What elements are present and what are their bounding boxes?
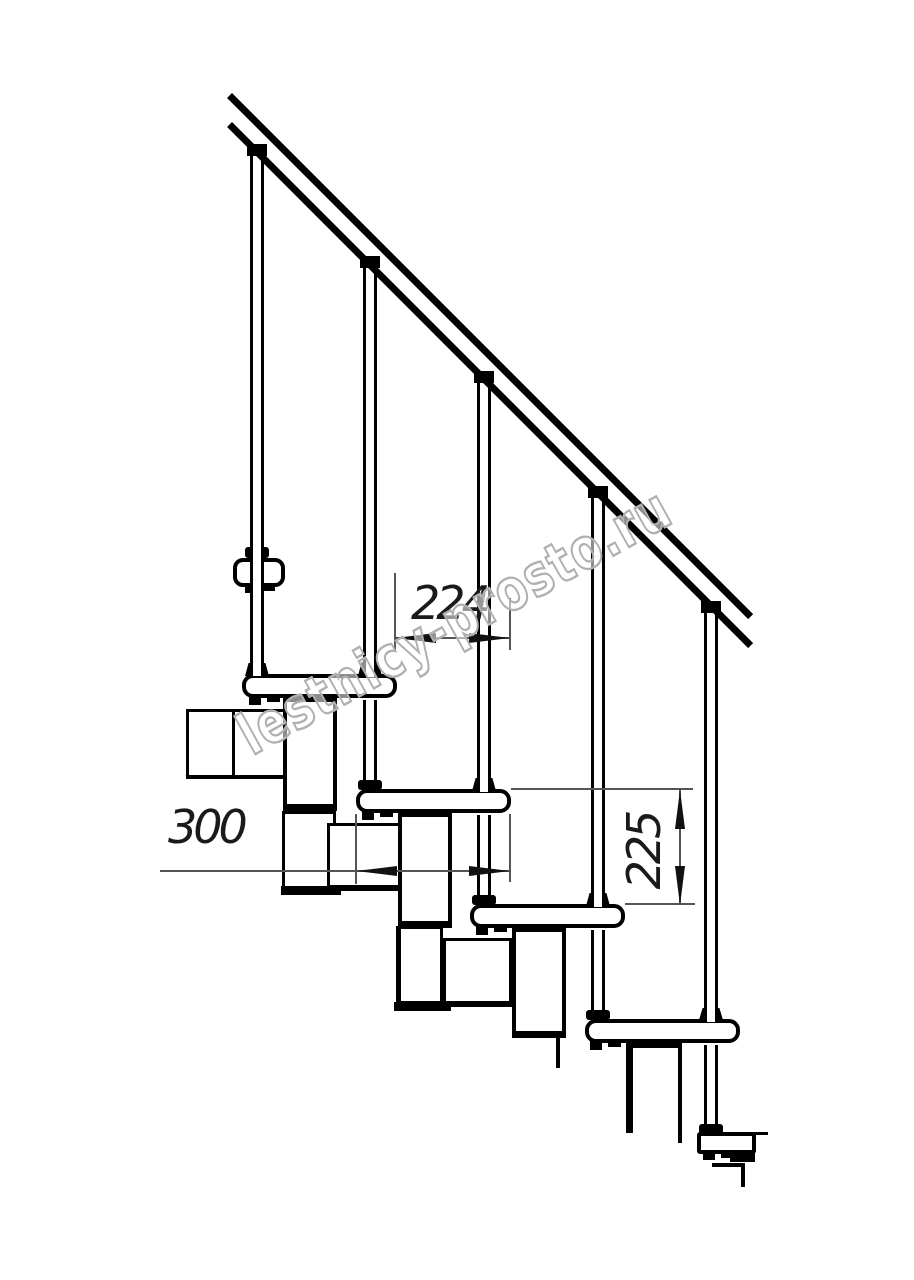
edge-module-box-3 xyxy=(443,938,512,1007)
edge-module-box-2 xyxy=(327,823,403,891)
tab xyxy=(249,696,261,705)
dim-300-label: 300 xyxy=(168,800,244,854)
tread-5 xyxy=(585,1019,740,1043)
dim-225-arrow-down xyxy=(675,866,685,905)
tab xyxy=(380,811,393,817)
post-segment-2 xyxy=(363,700,377,792)
tread-3 xyxy=(356,789,511,813)
tab xyxy=(362,811,374,820)
tab xyxy=(494,926,507,932)
floor-step-line-h xyxy=(712,1163,743,1167)
post-segment-4 xyxy=(591,930,605,1022)
tab xyxy=(267,696,280,702)
baluster-4 xyxy=(591,494,605,907)
tab xyxy=(476,926,488,935)
stack-box-under-module-3 xyxy=(396,926,443,1004)
staircase-drawing: 224 300 225 lestnicy-prosto.ru xyxy=(0,0,914,1280)
module-2 xyxy=(283,698,337,811)
baluster-2 xyxy=(363,264,377,677)
floor-step-line-v xyxy=(741,1163,745,1187)
tread-2 xyxy=(242,674,397,698)
bottom-plate-top-line xyxy=(754,1132,768,1135)
post-segment-3 xyxy=(477,815,491,907)
tab xyxy=(590,1041,602,1050)
post-segment-5 xyxy=(704,1045,718,1135)
baluster-5 xyxy=(704,609,718,1022)
dim-224-label: 224 xyxy=(411,576,487,630)
dim-300-arrow-right xyxy=(469,866,510,876)
tab xyxy=(608,1041,621,1047)
dim-224-arrow-left xyxy=(395,633,436,643)
dim-300-line xyxy=(160,870,511,872)
module-5-left-edge xyxy=(626,1043,633,1133)
module-4 xyxy=(512,928,566,1038)
module-stub-line-1 xyxy=(556,1038,560,1068)
edge-module-box-1 xyxy=(186,709,291,779)
edge-module-box-1-divider xyxy=(232,709,235,779)
tab xyxy=(703,1151,715,1160)
module-5-right-edge xyxy=(678,1043,682,1143)
dim-300-arrow-left xyxy=(356,866,397,876)
tread-4 xyxy=(470,904,625,928)
dim-225-label: 225 xyxy=(617,809,664,894)
baluster-1 xyxy=(250,152,264,676)
dim-225-ext-top xyxy=(511,788,693,790)
dim-225-arrow-up xyxy=(675,790,685,829)
watermark: lestnicy-prosto.ru xyxy=(0,0,914,1280)
dim-224-arrow-right xyxy=(469,633,510,643)
bottom-bracket-band xyxy=(730,1151,755,1162)
